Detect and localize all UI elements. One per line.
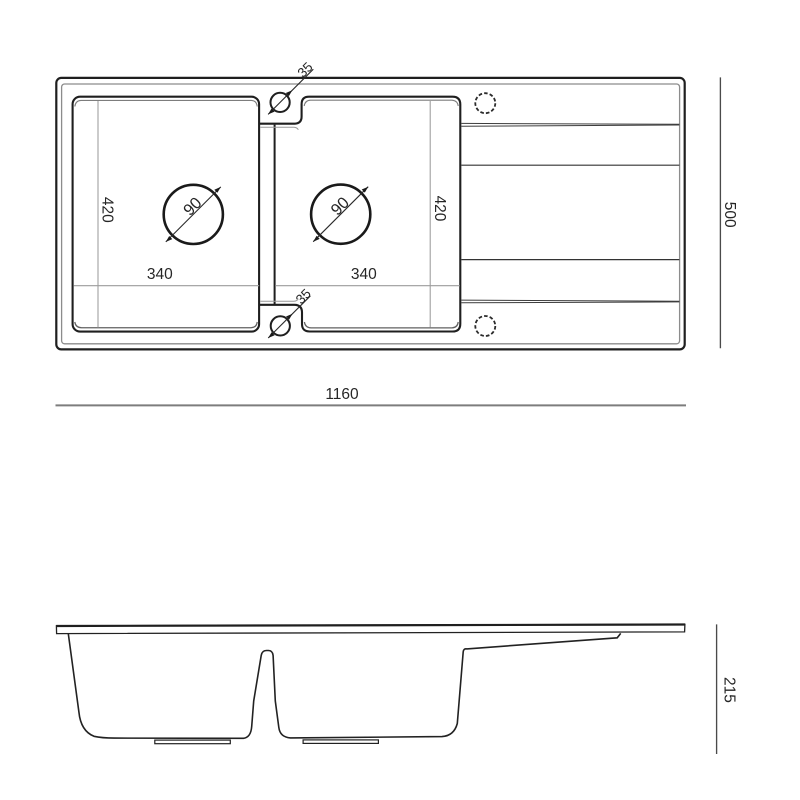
svg-text:500: 500 [721, 202, 738, 228]
svg-text:420: 420 [431, 196, 448, 222]
svg-text:420: 420 [99, 197, 116, 223]
svg-text:215: 215 [720, 677, 737, 703]
svg-text:35: 35 [293, 286, 314, 307]
svg-text:90: 90 [327, 194, 353, 220]
svg-text:340: 340 [351, 266, 377, 283]
svg-text:1160: 1160 [325, 386, 359, 403]
svg-text:90: 90 [180, 194, 206, 220]
svg-text:340: 340 [147, 266, 173, 283]
